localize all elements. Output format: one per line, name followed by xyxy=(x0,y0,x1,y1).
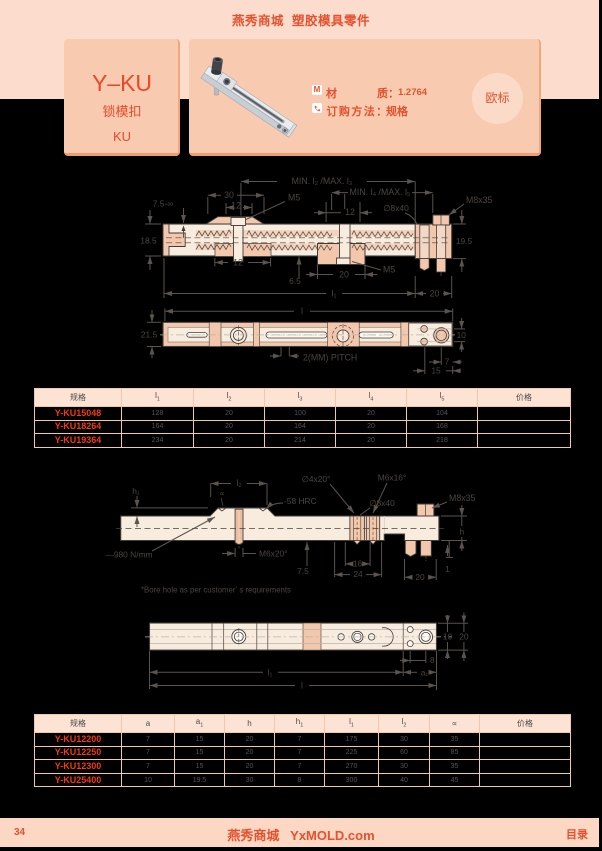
svg-text:h₁: h₁ xyxy=(132,486,140,496)
svg-text:10: 10 xyxy=(457,330,467,340)
svg-text:12: 12 xyxy=(233,257,243,267)
svg-text:M5: M5 xyxy=(383,265,395,275)
svg-text:l₁: l₁ xyxy=(268,667,273,677)
svg-text:1: 1 xyxy=(445,565,450,574)
svg-text:MIN. l₂ /MAX. l₃: MIN. l₂ /MAX. l₃ xyxy=(292,176,353,186)
svg-text:20: 20 xyxy=(459,632,469,642)
svg-text:30: 30 xyxy=(224,190,234,200)
svg-text:l₂: l₂ xyxy=(236,478,241,488)
svg-text:∅4x20°: ∅4x20° xyxy=(302,474,331,484)
svg-text:18.5: 18.5 xyxy=(140,236,157,246)
svg-text:-58 HRC: -58 HRC xyxy=(284,496,317,506)
svg-text:M6x20°: M6x20° xyxy=(259,549,288,559)
svg-text:∅8x40: ∅8x40 xyxy=(383,203,409,213)
svg-text:∅8x40: ∅8x40 xyxy=(369,498,395,508)
svg-text:MIN. l₄ /MAX. l₅: MIN. l₄ /MAX. l₅ xyxy=(350,187,411,197)
svg-text:6.5: 6.5 xyxy=(289,276,301,286)
svg-text:7.5: 7.5 xyxy=(297,566,309,576)
svg-text:7.5-∞: 7.5-∞ xyxy=(153,199,173,209)
svg-text:M8x35: M8x35 xyxy=(449,493,476,503)
svg-text:a₁: a₁ xyxy=(421,667,429,677)
svg-text:l₁: l₁ xyxy=(332,288,337,298)
svg-text:19.5: 19.5 xyxy=(456,236,473,246)
svg-text:15: 15 xyxy=(431,366,441,376)
svg-text:24: 24 xyxy=(353,569,363,579)
svg-text:2(MM) PITCH: 2(MM) PITCH xyxy=(303,353,357,363)
svg-text:21.5: 21.5 xyxy=(141,329,158,339)
svg-text:12: 12 xyxy=(231,201,241,211)
svg-text:10: 10 xyxy=(443,632,453,642)
svg-text:8: 8 xyxy=(430,655,435,665)
svg-text:20: 20 xyxy=(430,288,440,298)
svg-text:M6x16°: M6x16° xyxy=(378,473,407,483)
svg-text:20: 20 xyxy=(415,572,425,582)
svg-text:*Bore hole as per customer’ s: *Bore hole as per customer’ s requiremen… xyxy=(141,586,291,595)
svg-text:20: 20 xyxy=(339,269,349,279)
svg-text:M5: M5 xyxy=(288,193,300,203)
svg-text:16: 16 xyxy=(353,558,363,568)
svg-text:l: l xyxy=(301,306,303,316)
svg-text:—980 N/mm: —980 N/mm xyxy=(105,550,152,560)
svg-text:M8x35: M8x35 xyxy=(466,195,493,205)
svg-text:∝: ∝ xyxy=(219,489,224,498)
svg-text:7: 7 xyxy=(445,357,450,367)
svg-text:12: 12 xyxy=(345,207,355,217)
svg-text:h: h xyxy=(459,527,464,537)
svg-text:l: l xyxy=(301,680,303,690)
